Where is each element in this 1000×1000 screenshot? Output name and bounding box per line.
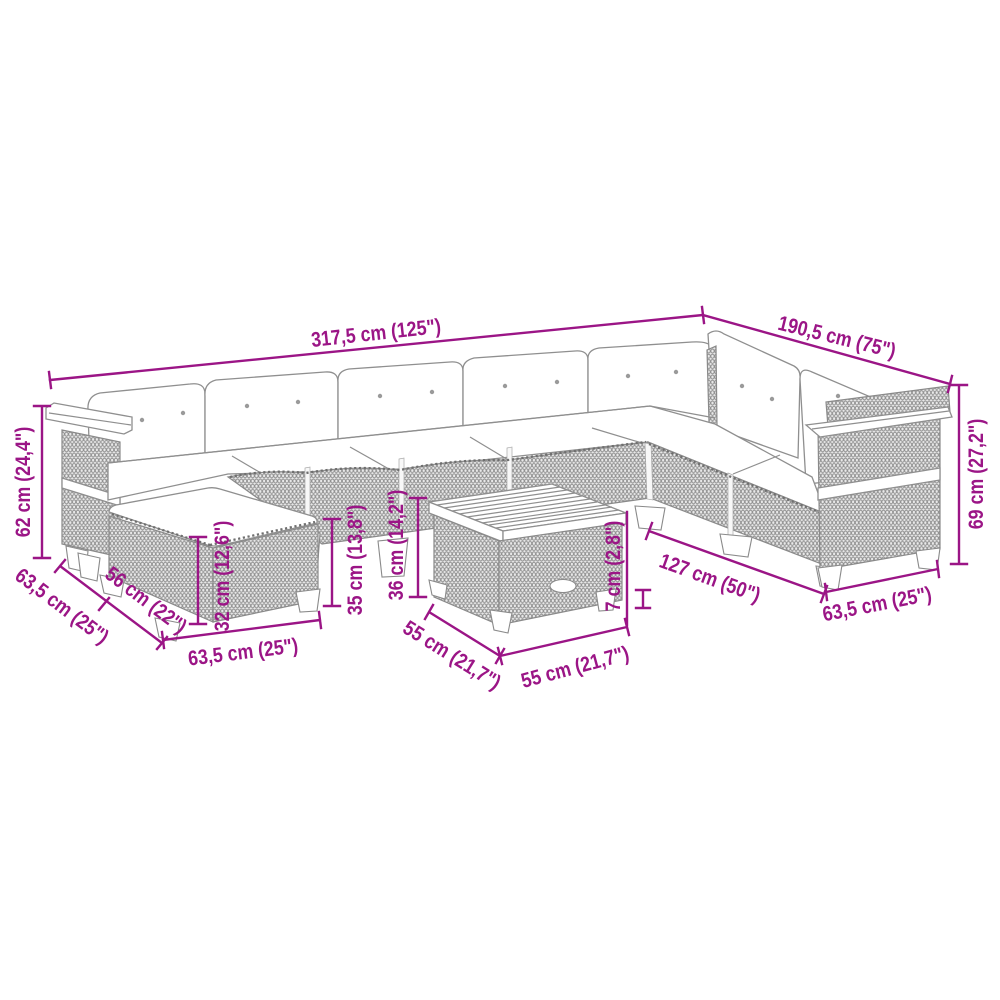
svg-text:36 cm (14,2"): 36 cm (14,2") xyxy=(385,490,409,601)
svg-text:69 cm (27,2"): 69 cm (27,2") xyxy=(965,419,989,530)
svg-text:32 cm (12,6"): 32 cm (12,6") xyxy=(211,521,235,632)
svg-text:7 cm (2,8"): 7 cm (2,8") xyxy=(602,521,626,612)
svg-text:62 cm (24,4"): 62 cm (24,4") xyxy=(12,427,36,538)
svg-text:35 cm (13,8"): 35 cm (13,8") xyxy=(344,505,368,616)
